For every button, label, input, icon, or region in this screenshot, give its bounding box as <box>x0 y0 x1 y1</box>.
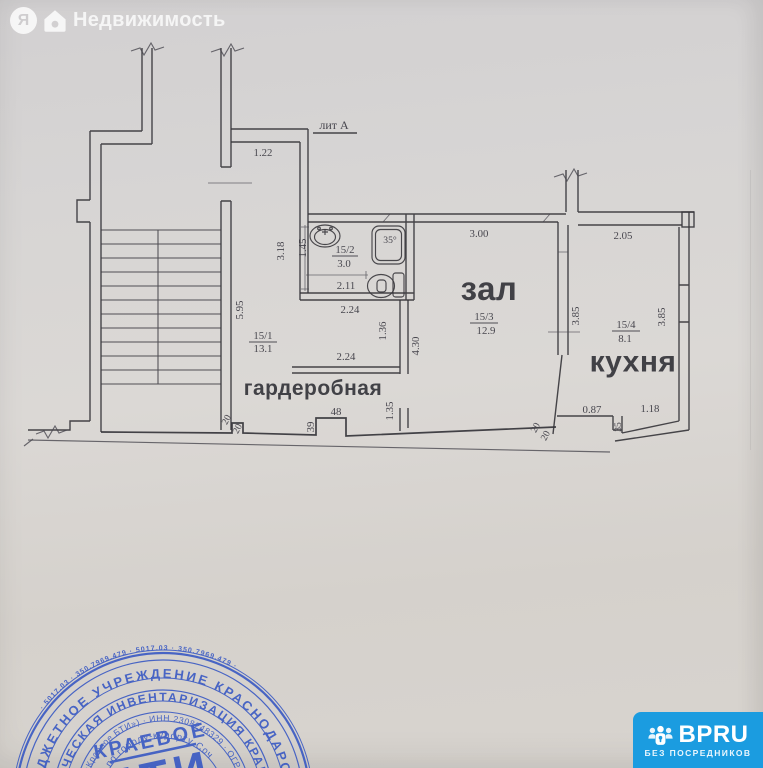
bti-stamp: · 5017.03 · 350.7969.479 · 5017.03 · 350… <box>3 640 323 768</box>
room-id-wardrobe: 15/1 <box>253 330 272 342</box>
bpru-badge: BPRU БЕЗ ПОСРЕДНИКОВ <box>633 712 763 768</box>
dim-hall-wall-left: 4.30 <box>410 337 422 356</box>
dim-shower-mark: 35° <box>383 235 397 246</box>
dim-pier-width: 48 <box>331 406 342 418</box>
dim-kitchen-bottom-diag: 1.18 <box>641 403 660 415</box>
bpru-people-icon <box>647 724 674 746</box>
dim-entry-height: 3.18 <box>275 242 287 261</box>
yandex-logo-letter: Я <box>18 12 30 30</box>
dim-hall-width: 3.00 <box>470 228 489 240</box>
watermark-brand: Недвижимость <box>73 9 226 32</box>
room-area-hall: 12.9 <box>477 325 496 337</box>
realty-watermark: Я Недвижимость <box>10 7 226 34</box>
dim-pier-depth: 39 <box>305 422 317 433</box>
room-id-hall: 15/3 <box>474 311 493 323</box>
dim-bath-height: 1.45 <box>297 239 309 258</box>
bpru-tagline: БЕЗ ПОСРЕДНИКОВ <box>645 748 752 758</box>
room-area-kitchen: 8.1 <box>618 333 632 345</box>
dim-corridor-width: 1.22 <box>254 147 273 159</box>
dim-kitchen-step: 35 <box>613 422 624 432</box>
room-area-wardrobe: 13.1 <box>254 343 273 355</box>
dimension-lines <box>208 183 580 332</box>
room-label-kitchen: кухня <box>590 345 677 379</box>
yandex-logo-icon: Я <box>10 7 37 34</box>
room-label-wardrobe: гардеробная <box>244 377 382 401</box>
house-icon <box>42 7 68 34</box>
dim-jog-d: 20 <box>539 429 553 443</box>
room-id-bath: 15/2 <box>335 244 354 256</box>
dim-building-label: лит А <box>319 118 349 132</box>
dim-partition-width: 2.24 <box>337 351 356 363</box>
floor-plan-photo: Я Недвижимость <box>0 0 763 768</box>
room-area-bath: 3.0 <box>337 258 351 270</box>
dim-hall-height-side: 5.95 <box>234 301 246 320</box>
dim-kitchen-bottom-left: 0.87 <box>583 404 602 416</box>
stairs <box>101 230 221 384</box>
dim-bath-width-inner: 2.11 <box>337 280 356 292</box>
dim-wall-segment-lower: 1.35 <box>384 402 396 421</box>
room-label-hall: зал <box>461 270 518 308</box>
dim-kitchen-depth-left: 3.85 <box>570 307 582 326</box>
dim-bath-width-outer: 2.24 <box>341 304 360 316</box>
bpru-brand: BPRU <box>678 723 748 747</box>
dim-kitchen-depth-right: 3.85 <box>656 308 668 327</box>
dim-wall-segment-upper: 1.36 <box>377 321 389 340</box>
dim-kitchen-width: 2.05 <box>614 230 633 242</box>
room-id-kitchen: 15/4 <box>616 319 636 331</box>
